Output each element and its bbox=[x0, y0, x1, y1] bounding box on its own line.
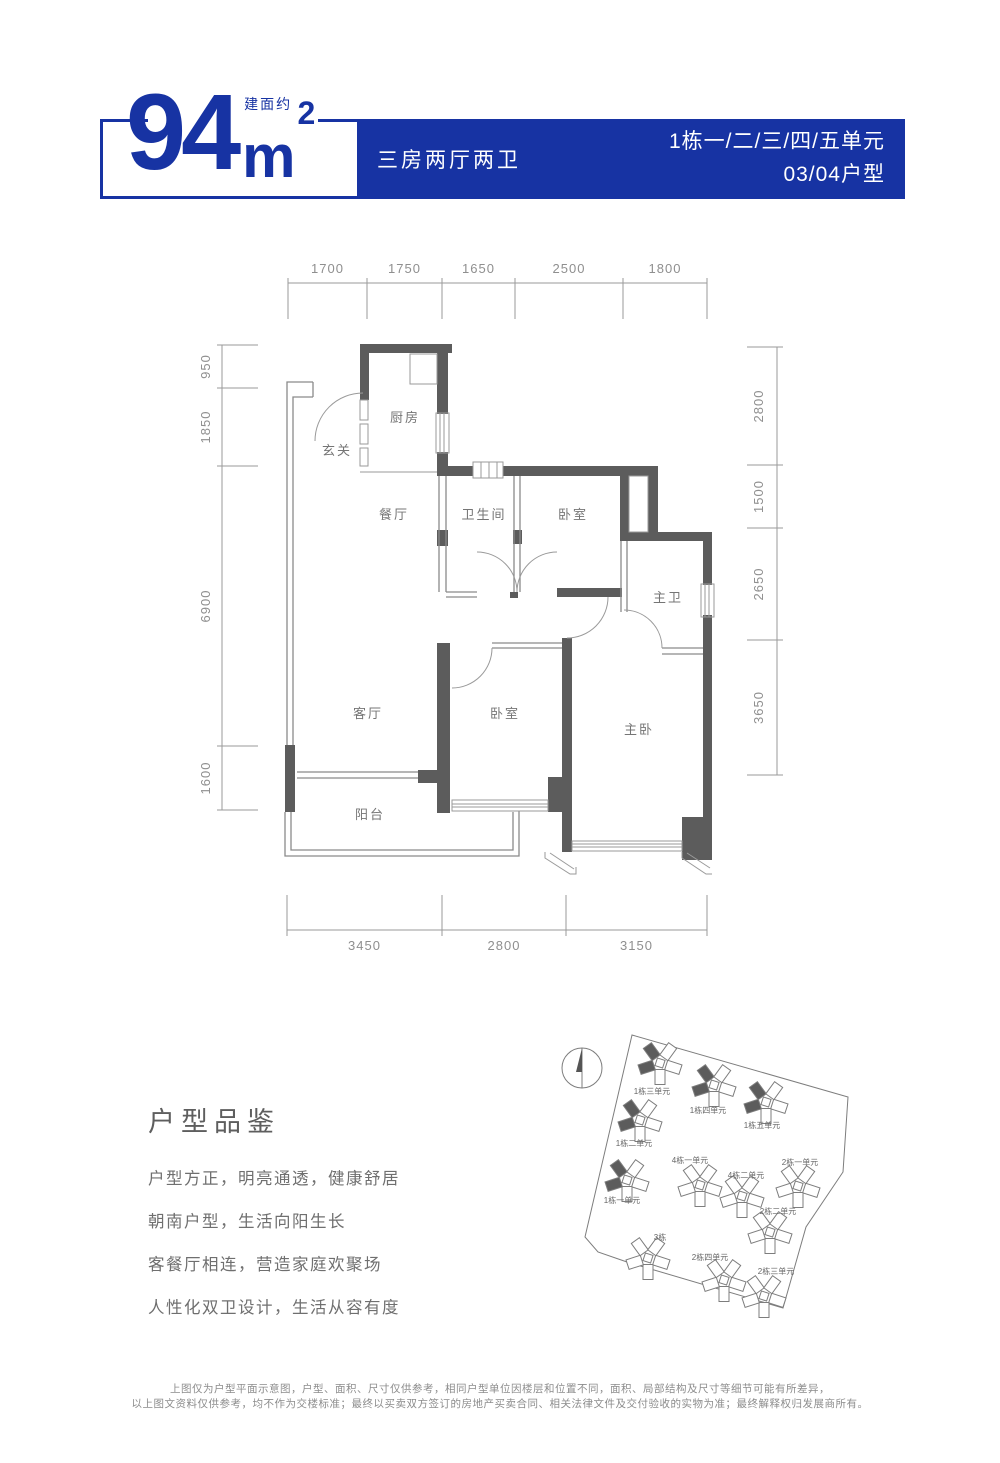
bath-window bbox=[473, 462, 503, 478]
area-unit: m bbox=[242, 123, 295, 190]
building-label: 2栋三单元 bbox=[758, 1266, 794, 1276]
building-label: 4栋一单元 bbox=[672, 1155, 708, 1165]
dimension-label: 1500 bbox=[751, 480, 766, 513]
building-cluster bbox=[622, 1231, 675, 1286]
bedroom2-door-arc bbox=[452, 648, 492, 688]
building-cluster bbox=[688, 1058, 741, 1113]
dimension-label: 1750 bbox=[388, 261, 421, 276]
room-label: 卫生间 bbox=[461, 507, 506, 522]
building-cluster bbox=[634, 1036, 687, 1091]
site-buildings: 1栋三单元1栋四单元1栋五单元1栋二单元1栋一单元4栋一单元4栋二单元2栋一单元… bbox=[601, 1036, 825, 1324]
building-label: 3栋 bbox=[654, 1232, 666, 1242]
building-label: 1栋一单元 bbox=[604, 1195, 640, 1205]
windows bbox=[436, 413, 714, 851]
building-label: 1栋四单元 bbox=[690, 1105, 726, 1115]
area-prefix: 建面约 bbox=[244, 99, 292, 110]
dimension-label: 1800 bbox=[649, 261, 682, 276]
kitchen-counter bbox=[410, 354, 437, 384]
masterbath-door-arc bbox=[624, 610, 662, 648]
building-label: 1栋五单元 bbox=[744, 1120, 780, 1130]
highlight-item: 客餐厅相连，营造家庭欢聚场 bbox=[148, 1251, 400, 1275]
building-cluster bbox=[674, 1158, 727, 1213]
dimension-label: 1700 bbox=[311, 261, 344, 276]
highlights-items: 户型方正，明亮通透，健康舒居朝南户型，生活向阳生长客餐厅相连，营造家庭欢聚场人性… bbox=[148, 1165, 400, 1318]
building-label: 4栋二单元 bbox=[728, 1170, 764, 1180]
dimension-label: 3650 bbox=[751, 691, 766, 724]
master-door-arc bbox=[567, 597, 608, 638]
kitchen-window bbox=[436, 413, 449, 453]
room-label: 主卫 bbox=[653, 590, 683, 605]
area-value: 94 bbox=[126, 82, 236, 181]
dimension-label: 950 bbox=[198, 354, 213, 379]
dimension-label: 6900 bbox=[198, 590, 213, 623]
area-figure: 94建面约m2 bbox=[126, 82, 315, 181]
dimension-label: 1600 bbox=[198, 762, 213, 795]
bedroom2-window bbox=[452, 800, 548, 811]
highlight-item: 人性化双卫设计，生活从容有度 bbox=[148, 1294, 400, 1318]
highlights-title: 户型品鉴 bbox=[148, 1100, 400, 1139]
master-window bbox=[572, 841, 682, 851]
building-label: 2栋四单元 bbox=[692, 1252, 728, 1262]
room-label: 阳台 bbox=[355, 807, 385, 822]
walls bbox=[285, 344, 712, 860]
dimension-label: 2650 bbox=[751, 568, 766, 601]
disclaimer-line2: 以上图文资料仅供参考，均不作为交楼标准；最终以买卖双方签订的房地产买卖合同、相关… bbox=[0, 1397, 1000, 1412]
room-label: 主卧 bbox=[624, 722, 654, 737]
bedroom-door-arc bbox=[517, 552, 557, 592]
badge-border-top-right bbox=[318, 119, 357, 122]
masterbath-window bbox=[701, 584, 714, 617]
bath-door-arc bbox=[477, 552, 517, 592]
room-label: 卧室 bbox=[558, 507, 588, 522]
north-compass bbox=[562, 1048, 602, 1088]
building-cluster bbox=[738, 1269, 791, 1324]
room-label: 厨房 bbox=[390, 410, 420, 425]
room-label: 玄关 bbox=[322, 443, 352, 458]
building-cluster bbox=[772, 1159, 825, 1214]
room-label: 卧室 bbox=[490, 706, 520, 721]
building-label: 1栋二单元 bbox=[616, 1138, 652, 1148]
unit-info: 1栋一/二/三/四/五单元 03/04户型 bbox=[669, 126, 885, 191]
partitions bbox=[285, 354, 712, 874]
building-label: 2栋二单元 bbox=[760, 1206, 796, 1216]
dimension-label: 3450 bbox=[348, 938, 381, 953]
unit-info-line2: 03/04户型 bbox=[669, 159, 885, 192]
highlight-item: 户型方正，明亮通透，健康舒居 bbox=[148, 1165, 400, 1189]
dimension-label: 2800 bbox=[751, 390, 766, 423]
badge-border-bottom bbox=[100, 196, 357, 199]
dimension-label: 3150 bbox=[620, 938, 653, 953]
entry-door-arc bbox=[315, 393, 363, 441]
unit-info-line1: 1栋一/二/三/四/五单元 bbox=[669, 126, 885, 159]
building-label: 2栋一单元 bbox=[782, 1157, 818, 1167]
area-exponent: 2 bbox=[298, 97, 316, 129]
layout-type: 三房两厅两卫 bbox=[377, 144, 521, 174]
header-bar: 三房两厅两卫 1栋一/二/三/四/五单元 03/04户型 bbox=[357, 119, 905, 199]
dimension-label: 2500 bbox=[553, 261, 586, 276]
disclaimer: 上图仅为户型平面示意图，户型、面积、尺寸仅供参考，相同户型单位因楼层和位置不同，… bbox=[0, 1382, 1000, 1412]
drain-left bbox=[545, 852, 576, 874]
highlights-block: 户型品鉴 户型方正，明亮通透，健康舒居朝南户型，生活向阳生长客餐厅相连，营造家庭… bbox=[148, 1100, 400, 1318]
room-label: 客厅 bbox=[353, 706, 383, 721]
room-label: 餐厅 bbox=[379, 507, 409, 522]
badge-border-left bbox=[100, 119, 103, 199]
dimension-label: 1650 bbox=[462, 261, 495, 276]
disclaimer-line1: 上图仅为户型平面示意图，户型、面积、尺寸仅供参考，相同户型单位因楼层和位置不同，… bbox=[0, 1382, 1000, 1397]
site-plan: 1栋三单元1栋四单元1栋五单元1栋二单元1栋一单元4栋一单元4栋二单元2栋一单元… bbox=[562, 1035, 848, 1324]
dimension-label: 1850 bbox=[198, 411, 213, 444]
building-label: 1栋三单元 bbox=[634, 1086, 670, 1096]
dimension-label: 2800 bbox=[488, 938, 521, 953]
highlight-item: 朝南户型，生活向阳生长 bbox=[148, 1208, 400, 1232]
